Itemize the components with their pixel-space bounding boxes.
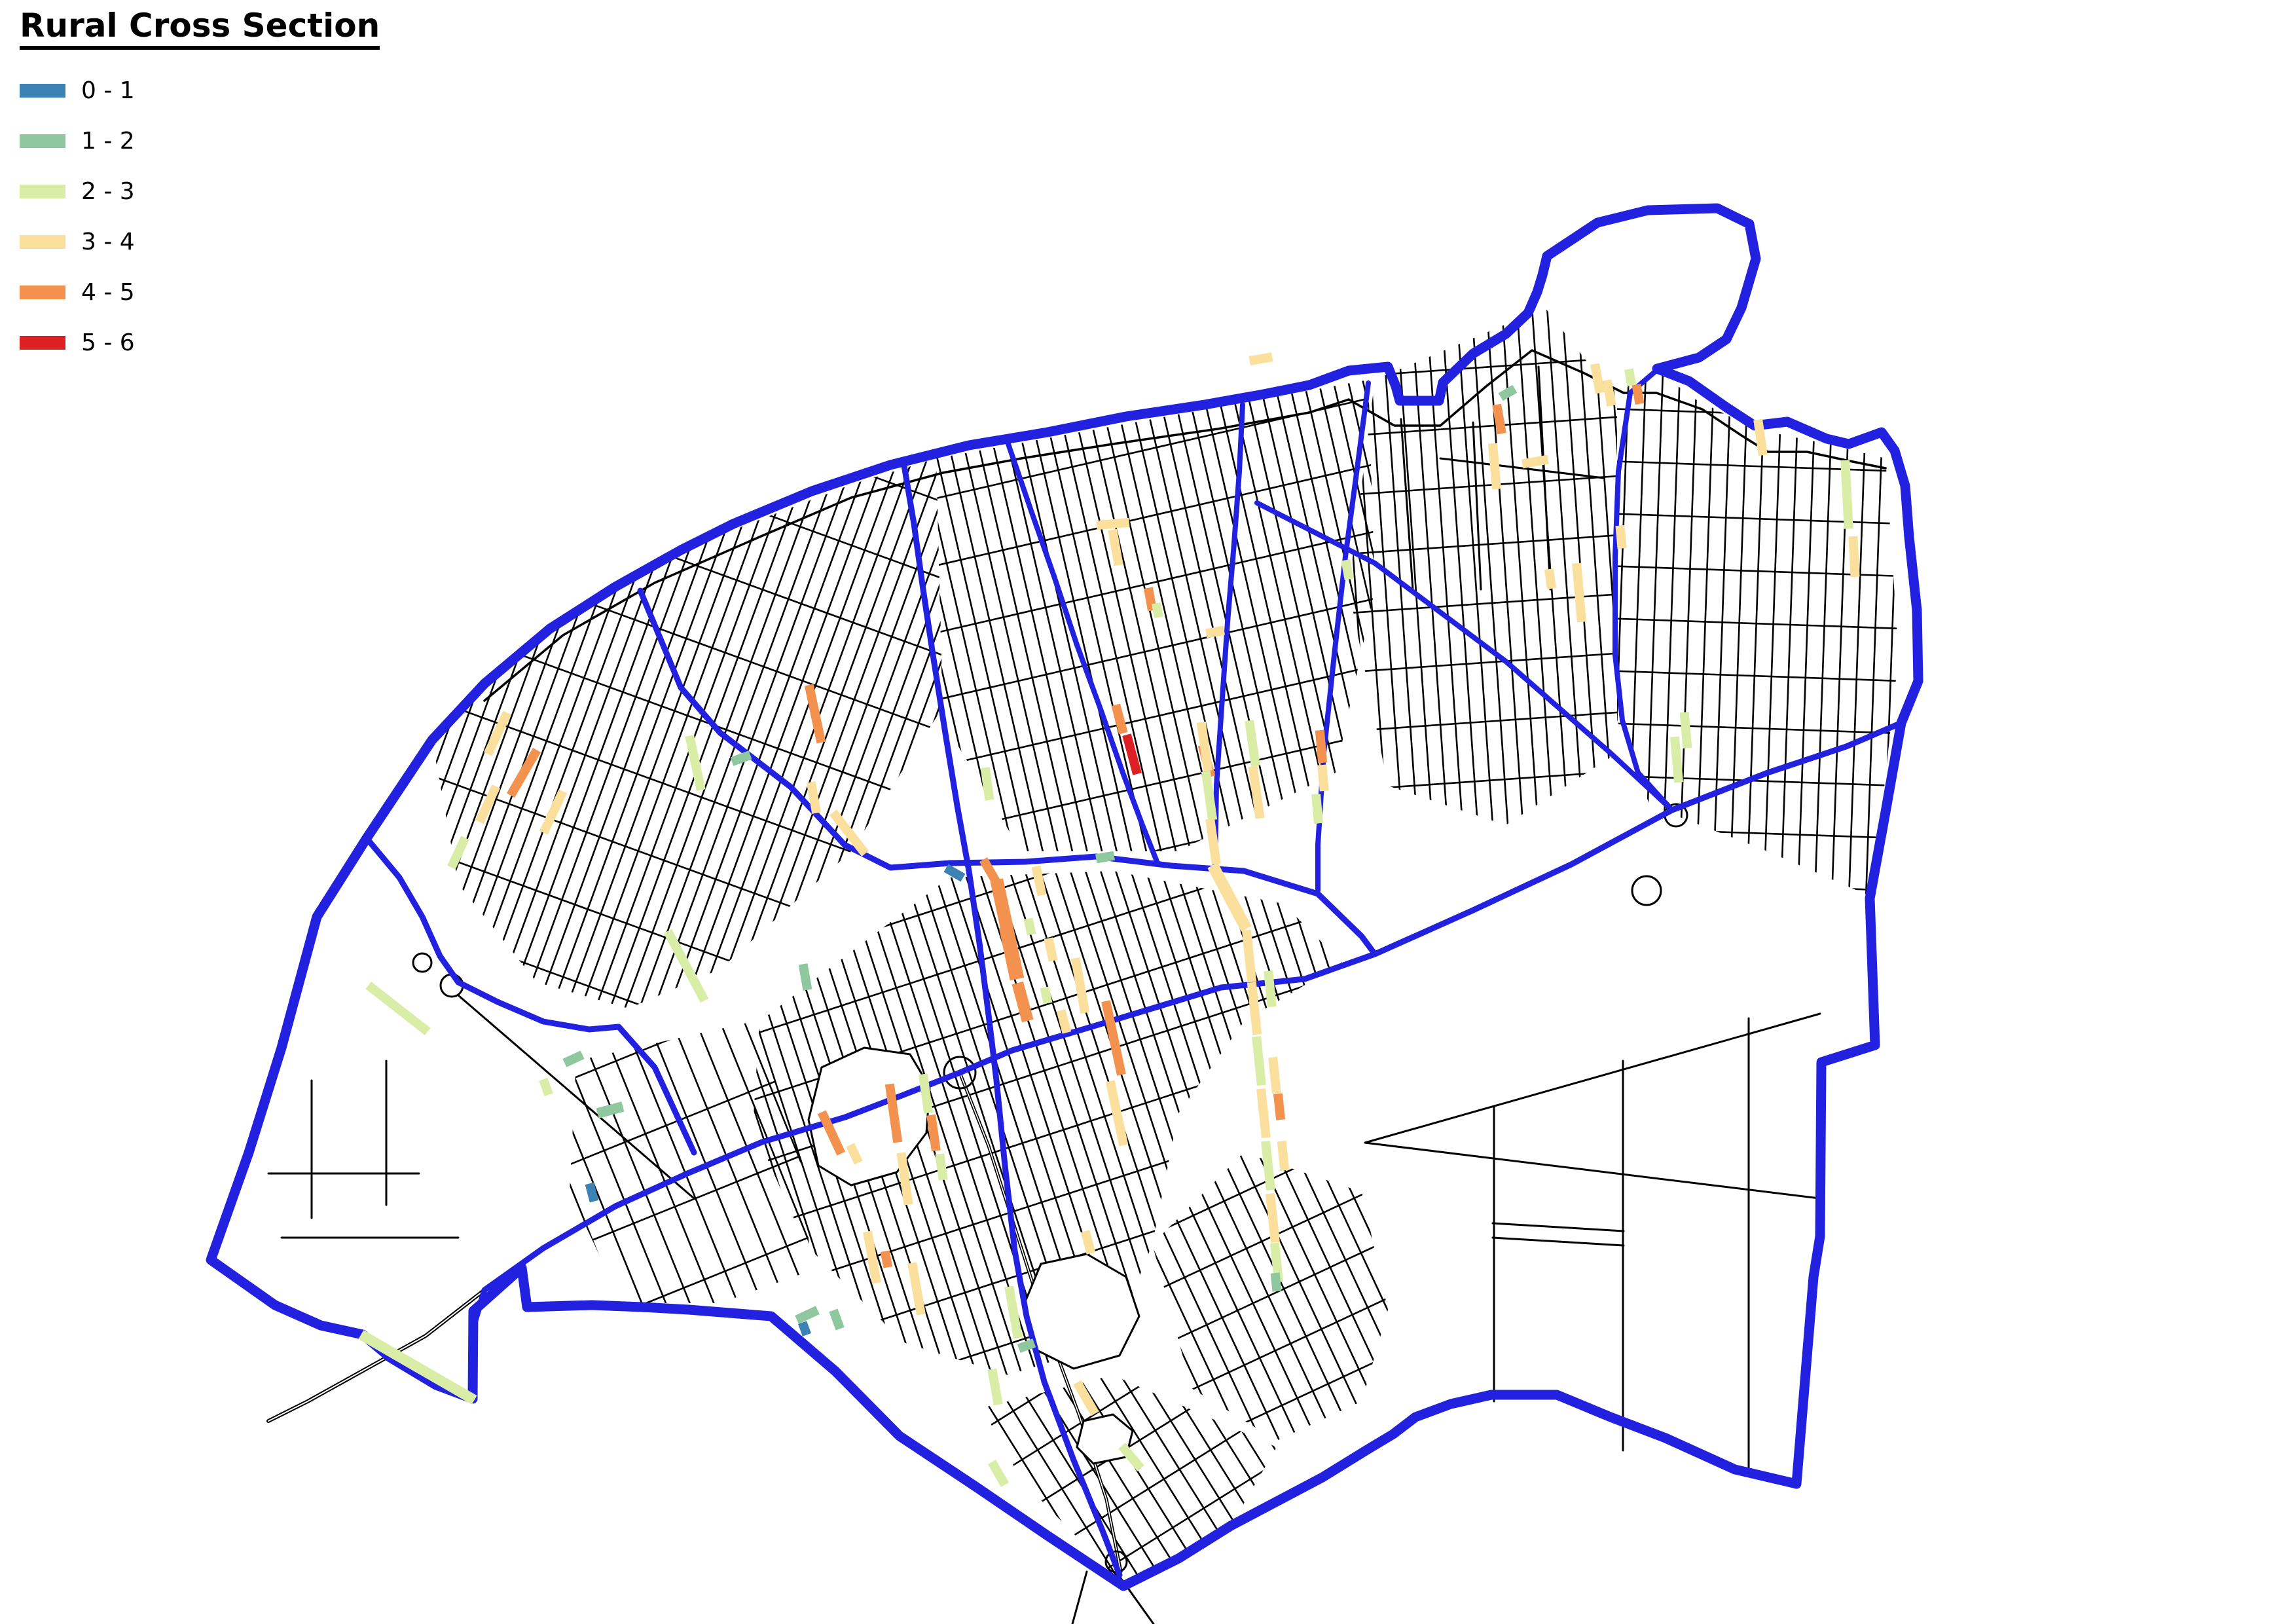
south-pond xyxy=(1025,1254,1139,1369)
cross-section-segment-class-3 xyxy=(484,710,511,756)
cross-section-segment-class-2 xyxy=(1680,712,1692,748)
rural-se-h1 xyxy=(1493,1223,1624,1231)
cross-section-segment-class-4 xyxy=(805,684,826,744)
northeast-arterial xyxy=(1318,383,1368,891)
cross-section-segment-class-3 xyxy=(1249,352,1273,365)
street-grid xyxy=(0,487,1392,1624)
cross-section-segment-class-3 xyxy=(1522,455,1549,469)
cross-section-segment-class-1 xyxy=(1271,1272,1282,1291)
cross-section-segment-class-3 xyxy=(907,1262,926,1315)
north-gap-v1 xyxy=(1401,419,1413,589)
cross-section-segment-class-3 xyxy=(1488,443,1501,490)
cross-section-segment-class-3 xyxy=(1544,568,1556,589)
legend: 0 - 1 1 - 2 2 - 3 3 - 4 4 - 5 5 - 6 xyxy=(20,65,135,368)
cross-section-segment-class-3 xyxy=(1572,563,1586,623)
interchange-loop xyxy=(413,953,431,972)
rural-se-diagonal-2 xyxy=(1365,1143,1819,1198)
north-gap-v3 xyxy=(1539,367,1550,589)
cross-section-segment-class-1 xyxy=(795,1306,820,1323)
riverside-west-arterial xyxy=(640,591,1375,954)
cross-section-segment-class-3 xyxy=(1031,866,1046,896)
cross-section-segment-class-3 xyxy=(1205,818,1221,864)
legend-swatch-2-3 xyxy=(20,185,65,198)
cross-section-segment-class-4 xyxy=(1012,982,1034,1023)
cross-section-segment-class-3 xyxy=(1096,518,1129,530)
cross-section-segment-class-3 xyxy=(1044,937,1058,961)
cross-section-segment-class-2 xyxy=(935,1153,947,1181)
cross-section-segment-class-3 xyxy=(1266,1193,1280,1243)
cross-section-segment-class-4 xyxy=(881,1250,892,1268)
map-wrap: Rural Cross Section 0 - 1 1 - 2 2 - 3 3 … xyxy=(0,0,2296,1624)
cross-section-segment-class-3 xyxy=(1081,1230,1096,1254)
legend-label: 2 - 3 xyxy=(81,178,135,205)
cross-section-segment-class-2 xyxy=(988,1460,1009,1487)
cross-section-segment-class-2 xyxy=(1670,737,1683,783)
legend-label: 0 - 1 xyxy=(81,77,135,104)
cross-section-segment-class-2 xyxy=(1024,917,1036,935)
cross-section-segment-class-1 xyxy=(562,1050,584,1067)
interchange-loop xyxy=(1632,876,1661,905)
cross-section-segment-class-2 xyxy=(365,982,430,1035)
cross-section-segment-class-1 xyxy=(829,1309,844,1331)
legend-swatch-1-2 xyxy=(20,134,65,148)
cross-section-segment-class-4 xyxy=(1273,1093,1285,1120)
cross-section-segment-class-3 xyxy=(1848,536,1859,578)
cross-section-segment-class-3 xyxy=(1256,1088,1271,1138)
legend-label: 3 - 4 xyxy=(81,229,135,255)
legend-row: 0 - 1 xyxy=(20,65,135,116)
legend-row: 2 - 3 xyxy=(20,166,135,217)
legend-row: 4 - 5 xyxy=(20,267,135,318)
rural-se-h2 xyxy=(1493,1238,1624,1246)
cross-section-segment-class-3 xyxy=(1247,982,1262,1035)
south-exit-2 xyxy=(1072,1572,1087,1624)
cross-section-segment-class-2 xyxy=(1152,602,1163,618)
cross-section-segment-class-1 xyxy=(1095,851,1115,864)
legend-row: 5 - 6 xyxy=(20,318,135,368)
cross-section-segment-class-2 xyxy=(1040,986,1053,1004)
legend-row: 1 - 2 xyxy=(20,116,135,166)
cross-section-segment-class-2 xyxy=(987,1369,1002,1406)
legend-label: 4 - 5 xyxy=(81,279,135,306)
legend-swatch-4-5 xyxy=(20,286,65,299)
cross-section-segment-class-3 xyxy=(1277,1141,1290,1171)
cross-section-segment-class-3 xyxy=(1268,1057,1281,1094)
cross-section-segment-class-2 xyxy=(1252,1036,1266,1086)
legend-swatch-0-1 xyxy=(20,84,65,98)
cross-section-segment-class-3 xyxy=(1106,1080,1128,1147)
street-grid xyxy=(1195,29,2296,1139)
rural-se-diagonal-1 xyxy=(1365,1014,1820,1143)
legend-swatch-5-6 xyxy=(20,336,65,350)
cross-section-segment-class-2 xyxy=(1264,970,1277,1007)
cross-section-segment-class-1 xyxy=(799,963,812,991)
cross-section-segment-class-2 xyxy=(1624,368,1636,386)
legend-row: 3 - 4 xyxy=(20,217,135,267)
title-block: Rural Cross Section xyxy=(20,8,380,44)
cross-section-segment-class-0 xyxy=(944,864,966,881)
page-title: Rural Cross Section xyxy=(20,7,380,50)
cross-section-segment-class-4 xyxy=(1101,1000,1126,1075)
legend-swatch-3-4 xyxy=(20,235,65,249)
cross-section-segment-class-2 xyxy=(1245,720,1260,766)
cross-section-segment-class-4 xyxy=(1632,384,1645,405)
cross-section-segment-class-3 xyxy=(1205,626,1225,638)
cross-section-segment-class-2 xyxy=(685,735,705,791)
cross-section-segment-class-1 xyxy=(731,750,752,766)
cross-section-segment-class-3 xyxy=(539,789,567,834)
legend-label: 5 - 6 xyxy=(81,329,135,356)
tip-pond xyxy=(1077,1414,1133,1464)
cross-section-segment-class-2 xyxy=(539,1078,553,1096)
cross-section-segment-class-4 xyxy=(1111,703,1127,734)
legend-label: 1 - 2 xyxy=(81,128,135,155)
map-canvas xyxy=(0,0,2296,1624)
